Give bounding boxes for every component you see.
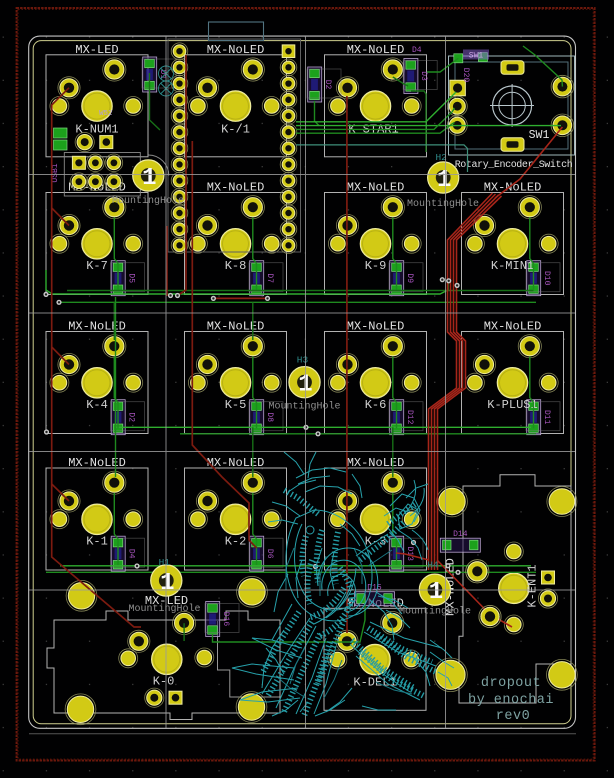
svg-text:K-4: K-4 xyxy=(86,398,108,412)
svg-text:MountingHole: MountingHole xyxy=(399,606,471,618)
svg-text:MX-NoLED: MX-NoLED xyxy=(207,456,265,470)
svg-text:D20: D20 xyxy=(461,68,470,83)
svg-text:D5: D5 xyxy=(127,273,136,283)
svg-text:MX-NoLED: MX-NoLED xyxy=(484,320,542,334)
svg-text:MX-LED: MX-LED xyxy=(75,43,118,57)
svg-text:H4: H4 xyxy=(427,560,439,571)
svg-text:K-1: K-1 xyxy=(86,535,108,549)
svg-text:D15: D15 xyxy=(367,584,382,593)
svg-text:D2: D2 xyxy=(323,80,332,90)
svg-text:D6: D6 xyxy=(265,549,274,559)
svg-text:MountingHole: MountingHole xyxy=(112,195,184,207)
svg-text:K-ENT1: K-ENT1 xyxy=(525,564,539,607)
svg-text:1: 1 xyxy=(160,570,174,597)
svg-text:D9: D9 xyxy=(405,273,414,283)
svg-text:MX-NoLED: MX-NoLED xyxy=(207,181,265,195)
svg-text:D10: D10 xyxy=(542,271,551,286)
svg-text:MX-NoLED: MX-NoLED xyxy=(68,456,126,470)
svg-text:by enochai: by enochai xyxy=(468,693,554,708)
svg-text:MountingHole: MountingHole xyxy=(128,603,200,615)
svg-text:W52: W52 xyxy=(99,110,113,118)
svg-text:MX-NoLED: MX-NoLED xyxy=(347,181,405,195)
svg-text:rev0: rev0 xyxy=(496,709,530,724)
svg-text:D3: D3 xyxy=(419,71,428,81)
svg-text:MX-NoLED: MX-NoLED xyxy=(207,43,265,57)
svg-text:1: 1 xyxy=(142,165,156,192)
svg-text:D12: D12 xyxy=(405,410,414,425)
svg-text:D7: D7 xyxy=(265,273,274,283)
svg-text:Rotary_Encoder_Switch: Rotary_Encoder_Switch xyxy=(455,159,573,171)
svg-text:MountingHole: MountingHole xyxy=(407,198,479,210)
svg-text:K-6: K-6 xyxy=(365,398,387,412)
svg-text:K-5: K-5 xyxy=(225,398,247,412)
svg-text:SW1: SW1 xyxy=(529,129,550,142)
svg-text:D4: D4 xyxy=(412,46,422,55)
svg-text:D8: D8 xyxy=(265,412,274,422)
svg-text:K-PLUS1: K-PLUS1 xyxy=(487,398,537,412)
svg-text:SW1: SW1 xyxy=(469,52,484,61)
svg-text:D11: D11 xyxy=(542,410,551,425)
svg-text:D4: D4 xyxy=(127,549,136,559)
svg-text:H3: H3 xyxy=(297,355,309,366)
svg-text:K-7: K-7 xyxy=(86,259,108,273)
svg-text:MX-NoLED: MX-NoLED xyxy=(347,456,405,470)
svg-text:D14: D14 xyxy=(453,530,468,539)
svg-text:K-MIN1: K-MIN1 xyxy=(491,259,534,273)
svg-text:MX-NoLED: MX-NoLED xyxy=(484,181,542,195)
svg-text:MX-NoLED: MX-NoLED xyxy=(347,320,405,334)
svg-text:K-DEL1: K-DEL1 xyxy=(353,676,396,690)
svg-text:K-/1: K-/1 xyxy=(221,123,250,137)
svg-text:1: 1 xyxy=(429,579,443,606)
svg-text:MX-NoLED: MX-NoLED xyxy=(207,320,265,334)
svg-text:dropout: dropout xyxy=(481,676,541,691)
svg-text:MountingHole: MountingHole xyxy=(268,401,340,413)
svg-text:H1: H1 xyxy=(159,557,171,568)
svg-text:D16: D16 xyxy=(221,612,230,627)
svg-text:1: 1 xyxy=(437,167,451,194)
svg-text:K-2: K-2 xyxy=(225,535,247,549)
svg-text:MX-NoLED: MX-NoLED xyxy=(68,320,126,334)
svg-text:D2: D2 xyxy=(127,412,136,422)
svg-text:MX-NoLED: MX-NoLED xyxy=(347,43,405,57)
svg-text:K-9: K-9 xyxy=(365,259,387,273)
svg-text:K-NUM1: K-NUM1 xyxy=(75,123,118,137)
svg-text:K-8: K-8 xyxy=(225,259,247,273)
svg-text:K-0: K-0 xyxy=(153,675,175,689)
